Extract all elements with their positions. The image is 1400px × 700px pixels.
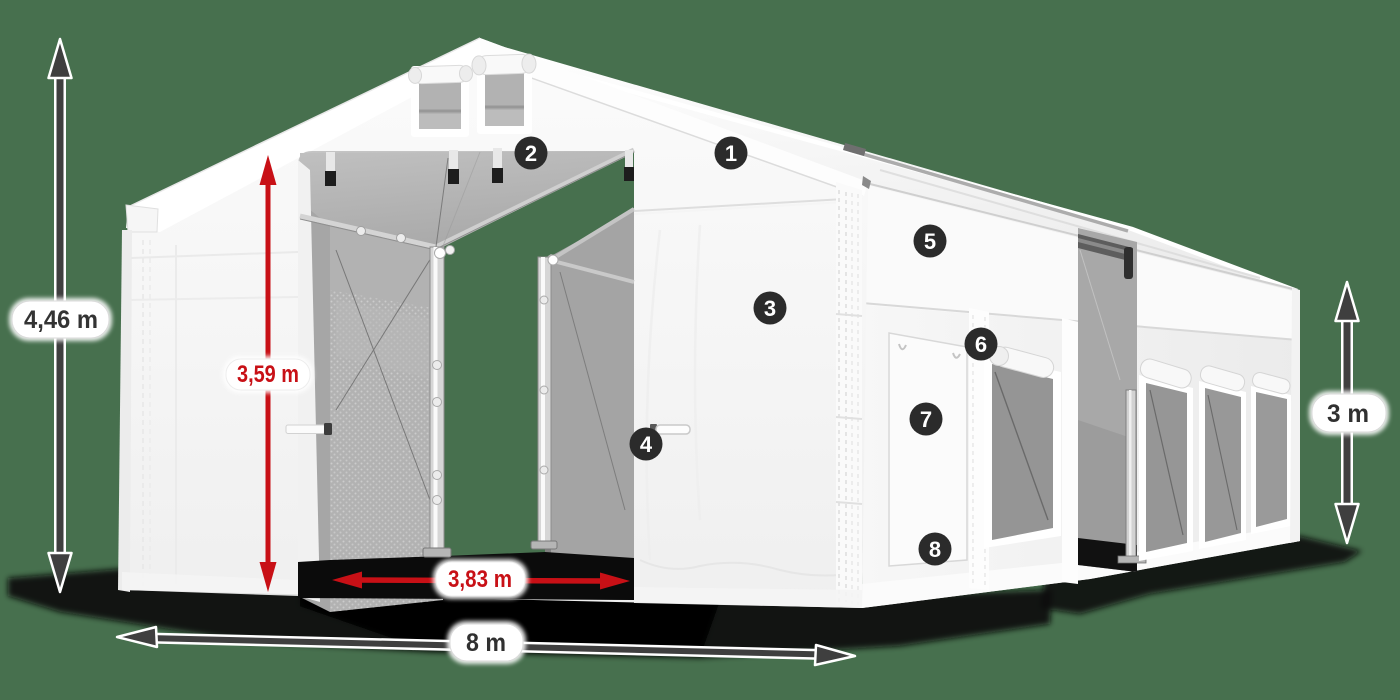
svg-text:3,83 m: 3,83 m	[448, 566, 512, 593]
svg-text:4: 4	[640, 432, 653, 457]
svg-text:1: 1	[725, 141, 737, 166]
svg-text:8 m: 8 m	[466, 629, 506, 657]
svg-text:6: 6	[975, 332, 987, 357]
svg-text:3,59 m: 3,59 m	[237, 361, 299, 388]
svg-text:3: 3	[764, 296, 776, 321]
svg-text:3 m: 3 m	[1327, 400, 1369, 428]
svg-text:2: 2	[525, 141, 537, 166]
svg-text:8: 8	[929, 537, 941, 562]
svg-text:7: 7	[920, 407, 932, 432]
svg-text:4,46 m: 4,46 m	[24, 306, 98, 334]
svg-text:5: 5	[924, 229, 936, 254]
